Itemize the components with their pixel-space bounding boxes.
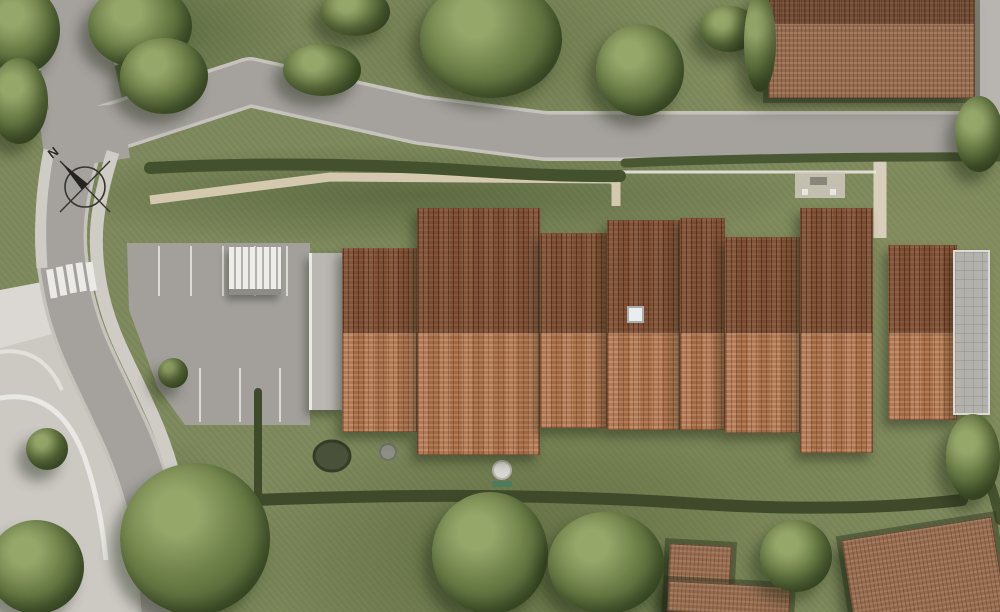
site-plan: N xyxy=(0,0,1000,612)
flowering-tree xyxy=(432,492,548,612)
rooftop-terrace xyxy=(953,250,990,415)
hedge xyxy=(256,496,962,508)
hedge xyxy=(625,157,1000,163)
bike-shelter xyxy=(229,247,281,295)
tree xyxy=(946,414,1000,500)
patio-table xyxy=(810,177,827,185)
garden-feature xyxy=(493,461,511,479)
building-roof-block xyxy=(800,208,873,453)
building-flat-roof xyxy=(309,253,342,410)
building-roof-block xyxy=(680,218,725,430)
parking-lot xyxy=(127,243,310,425)
pond xyxy=(314,441,350,471)
building-roof-block xyxy=(342,248,417,432)
garden-feature xyxy=(380,444,396,460)
tree xyxy=(955,96,1000,172)
tree xyxy=(26,428,68,470)
building-roof-block xyxy=(725,237,800,433)
pedestrian-path xyxy=(150,177,616,206)
tree xyxy=(120,463,270,612)
building-roof-block xyxy=(607,220,680,430)
building-roof-block xyxy=(540,233,607,428)
neighbor-house-roof xyxy=(768,0,975,98)
building-roof-block xyxy=(888,245,957,420)
garden-bench xyxy=(492,481,512,487)
roof-skylight xyxy=(627,306,644,323)
tree xyxy=(760,520,832,592)
flowering-tree xyxy=(596,24,684,116)
neighbor-house-roof xyxy=(667,581,790,612)
tree xyxy=(158,358,188,388)
building-roof-block xyxy=(417,208,540,455)
tree xyxy=(548,512,664,612)
flowering-tree xyxy=(283,44,361,96)
patio-chair xyxy=(830,189,836,195)
tree xyxy=(120,38,208,114)
patio-chair xyxy=(802,189,808,195)
